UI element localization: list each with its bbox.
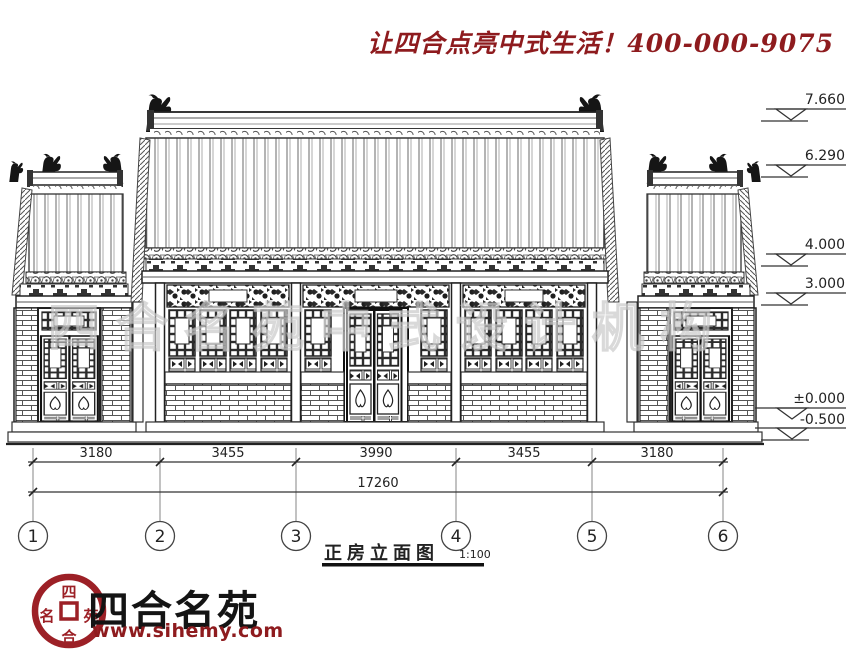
- elevation-marker: 7.660: [761, 92, 846, 121]
- eave-brackets: [146, 259, 604, 271]
- left-wing: [9, 154, 136, 432]
- dim-segment: 3180: [640, 446, 673, 461]
- dimension-line-total: 17260: [28, 476, 728, 496]
- elevation-marker: 3.000: [761, 276, 846, 305]
- elevation-marker: 6.290: [761, 148, 846, 177]
- elevation-drawing: 7.660 6.290 4.000 3.000 ±0.000: [0, 0, 850, 660]
- elevation-value: 4.000: [805, 237, 845, 253]
- axis-label: 5: [587, 527, 598, 547]
- elevation-value: 7.660: [805, 92, 845, 108]
- dim-segment: 3455: [507, 446, 540, 461]
- drawing-scale: 1:100: [459, 548, 491, 561]
- elevation-value: ±0.000: [793, 391, 845, 407]
- dim-segment: 3990: [359, 446, 392, 461]
- slogan-text: 让四合点亮中式生活！400-000-9075: [367, 24, 834, 60]
- dim-total: 17260: [357, 476, 398, 491]
- seal-char-left: 名: [39, 607, 54, 625]
- window-bay-right: [461, 285, 587, 422]
- axis-label: 4: [451, 527, 462, 547]
- website-text: www.sihemy.com: [92, 620, 284, 642]
- elevation-value: 3.000: [805, 276, 845, 292]
- main-entrance-door: [347, 310, 402, 422]
- seal-char-top: 四: [61, 583, 76, 601]
- drawing-title: 正房立面图: [324, 542, 439, 564]
- architrave-beam: [142, 271, 608, 283]
- dimension-line-segments: 3180 3455 3990 3455 3180: [28, 446, 728, 466]
- elevation-markers: 7.660 6.290 4.000 3.000 ±0.000: [755, 92, 846, 440]
- elevation-marker: -0.500: [755, 412, 846, 440]
- dimension-block: 3180 3455 3990 3455 3180 17260 1 2 3 4: [19, 446, 738, 551]
- elevation-value: 6.290: [805, 148, 845, 164]
- axis-label: 2: [155, 527, 166, 547]
- right-wing: [634, 154, 761, 432]
- elevation-value: -0.500: [800, 412, 845, 428]
- axis-label: 3: [291, 527, 302, 547]
- door-bay-center: [301, 285, 451, 422]
- dim-segment: 3180: [79, 446, 112, 461]
- elevation-marker: 4.000: [761, 237, 846, 266]
- window-bay-left: [165, 285, 291, 422]
- axis-label: 1: [28, 527, 39, 547]
- dim-segment: 3455: [211, 446, 244, 461]
- seal-char-bottom: 合: [60, 628, 77, 646]
- axis-label: 6: [718, 527, 729, 547]
